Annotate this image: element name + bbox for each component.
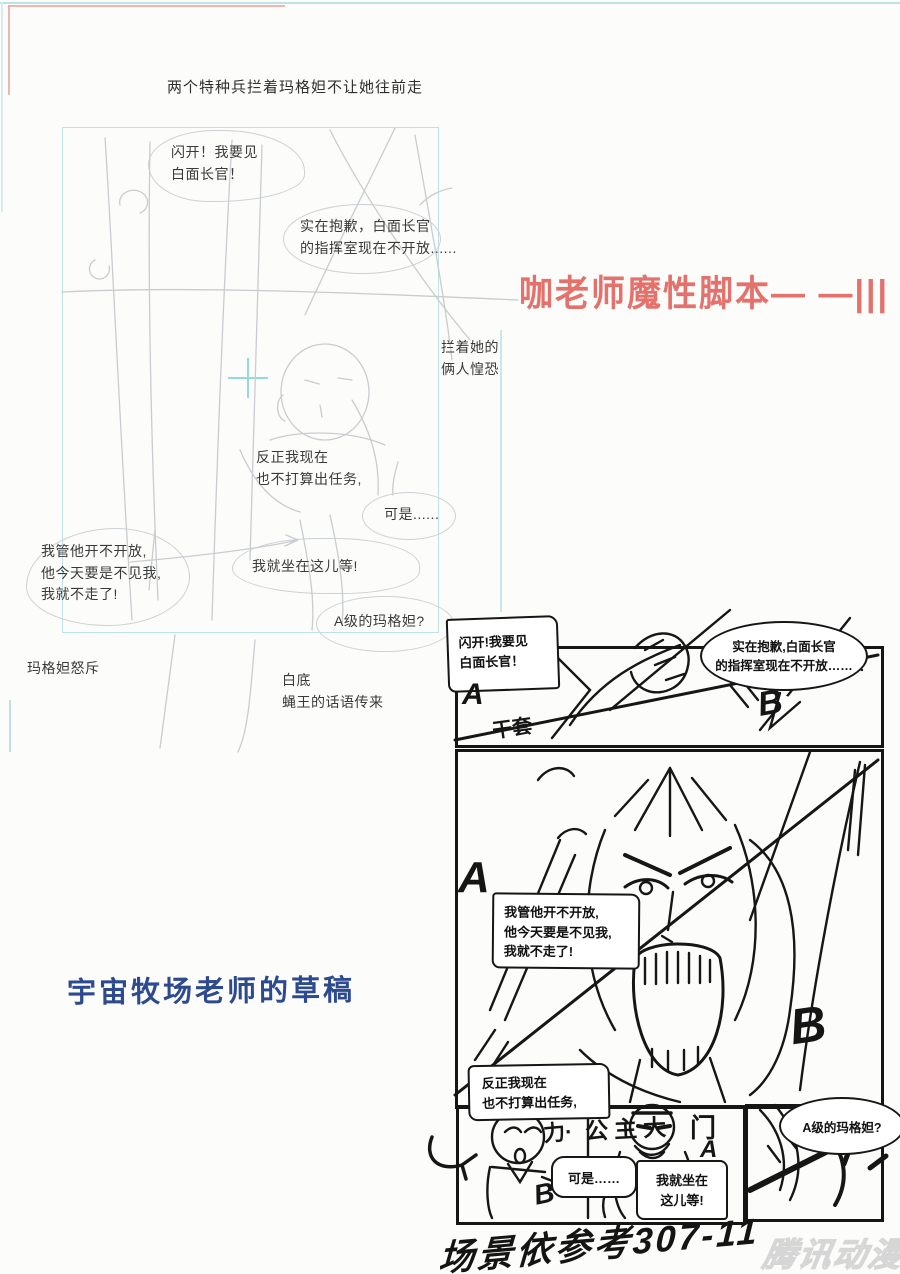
- handwritten-label-li: 力·: [542, 1114, 574, 1148]
- storyboard-bubble-keshi: 可是......: [384, 504, 439, 526]
- top-red-guide-line: [8, 5, 285, 7]
- sketch-bubble-keshi: 可是……: [551, 1156, 637, 1198]
- sketch-bubble-woguan: 我管他开不开放, 他今天要是不见我, 我就不走了!: [492, 892, 641, 969]
- sketch-bubble-aji: A级的玛格妲?: [779, 1097, 900, 1155]
- storyboard-caption: 两个特种兵拦着玛格妲不让她往前走: [167, 76, 423, 97]
- handwritten-scribble-1: 干套: [490, 709, 534, 743]
- storyboard-bubble-shankai: 闪开！我要见 白面长官！: [171, 142, 258, 185]
- handwritten-label-men-a: A: [700, 1136, 717, 1164]
- storyboard-note-lanzhe: 拦着她的 俩人惶恐: [441, 337, 499, 380]
- storyboard-label-baidi: 白底 蝇王的话语传来: [282, 670, 384, 713]
- storyboard-bubble-fanzheng: 反正我现在 也不打算出任务,: [256, 447, 362, 490]
- sketch-bubble-shizai: 实在抱歉,白面长官 的指挥室现在不开放……: [700, 621, 868, 691]
- handwritten-label-a1: A: [462, 678, 484, 712]
- storyboard-bubble-wojiuzuo: 我就坐在这儿等!: [252, 556, 358, 578]
- tencent-comics-watermark: 腾讯动漫: [760, 1228, 900, 1274]
- blue-draft-caption: 宇宙牧场老师的草稿: [67, 967, 355, 1012]
- left-red-guide-line: [8, 5, 10, 95]
- handwritten-label-gongzhu: 公主大: [584, 1108, 673, 1147]
- storyboard-label-nuchi: 玛格妲怒斥: [27, 658, 100, 680]
- storyboard-bubble-shizai: 实在抱歉，白面长官 的指挥室现在不开放......: [300, 216, 457, 259]
- top-cyan-guide-line: [0, 2, 900, 4]
- handwritten-label-a2: A: [458, 853, 490, 903]
- storyboard-bubble-aji: A级的玛格妲?: [334, 611, 425, 633]
- comic-draft-page: 两个特种兵拦着玛格妲不让她往前走 闪开！我要见 白面长官！ 实在抱歉，白面长官 …: [0, 0, 900, 1274]
- red-script-title: 咖老师魔性脚本— —|||: [519, 265, 889, 316]
- storyboard-bubble-woguan: 我管他开不开放, 他今天要是不见我, 我就不走了!: [41, 541, 161, 606]
